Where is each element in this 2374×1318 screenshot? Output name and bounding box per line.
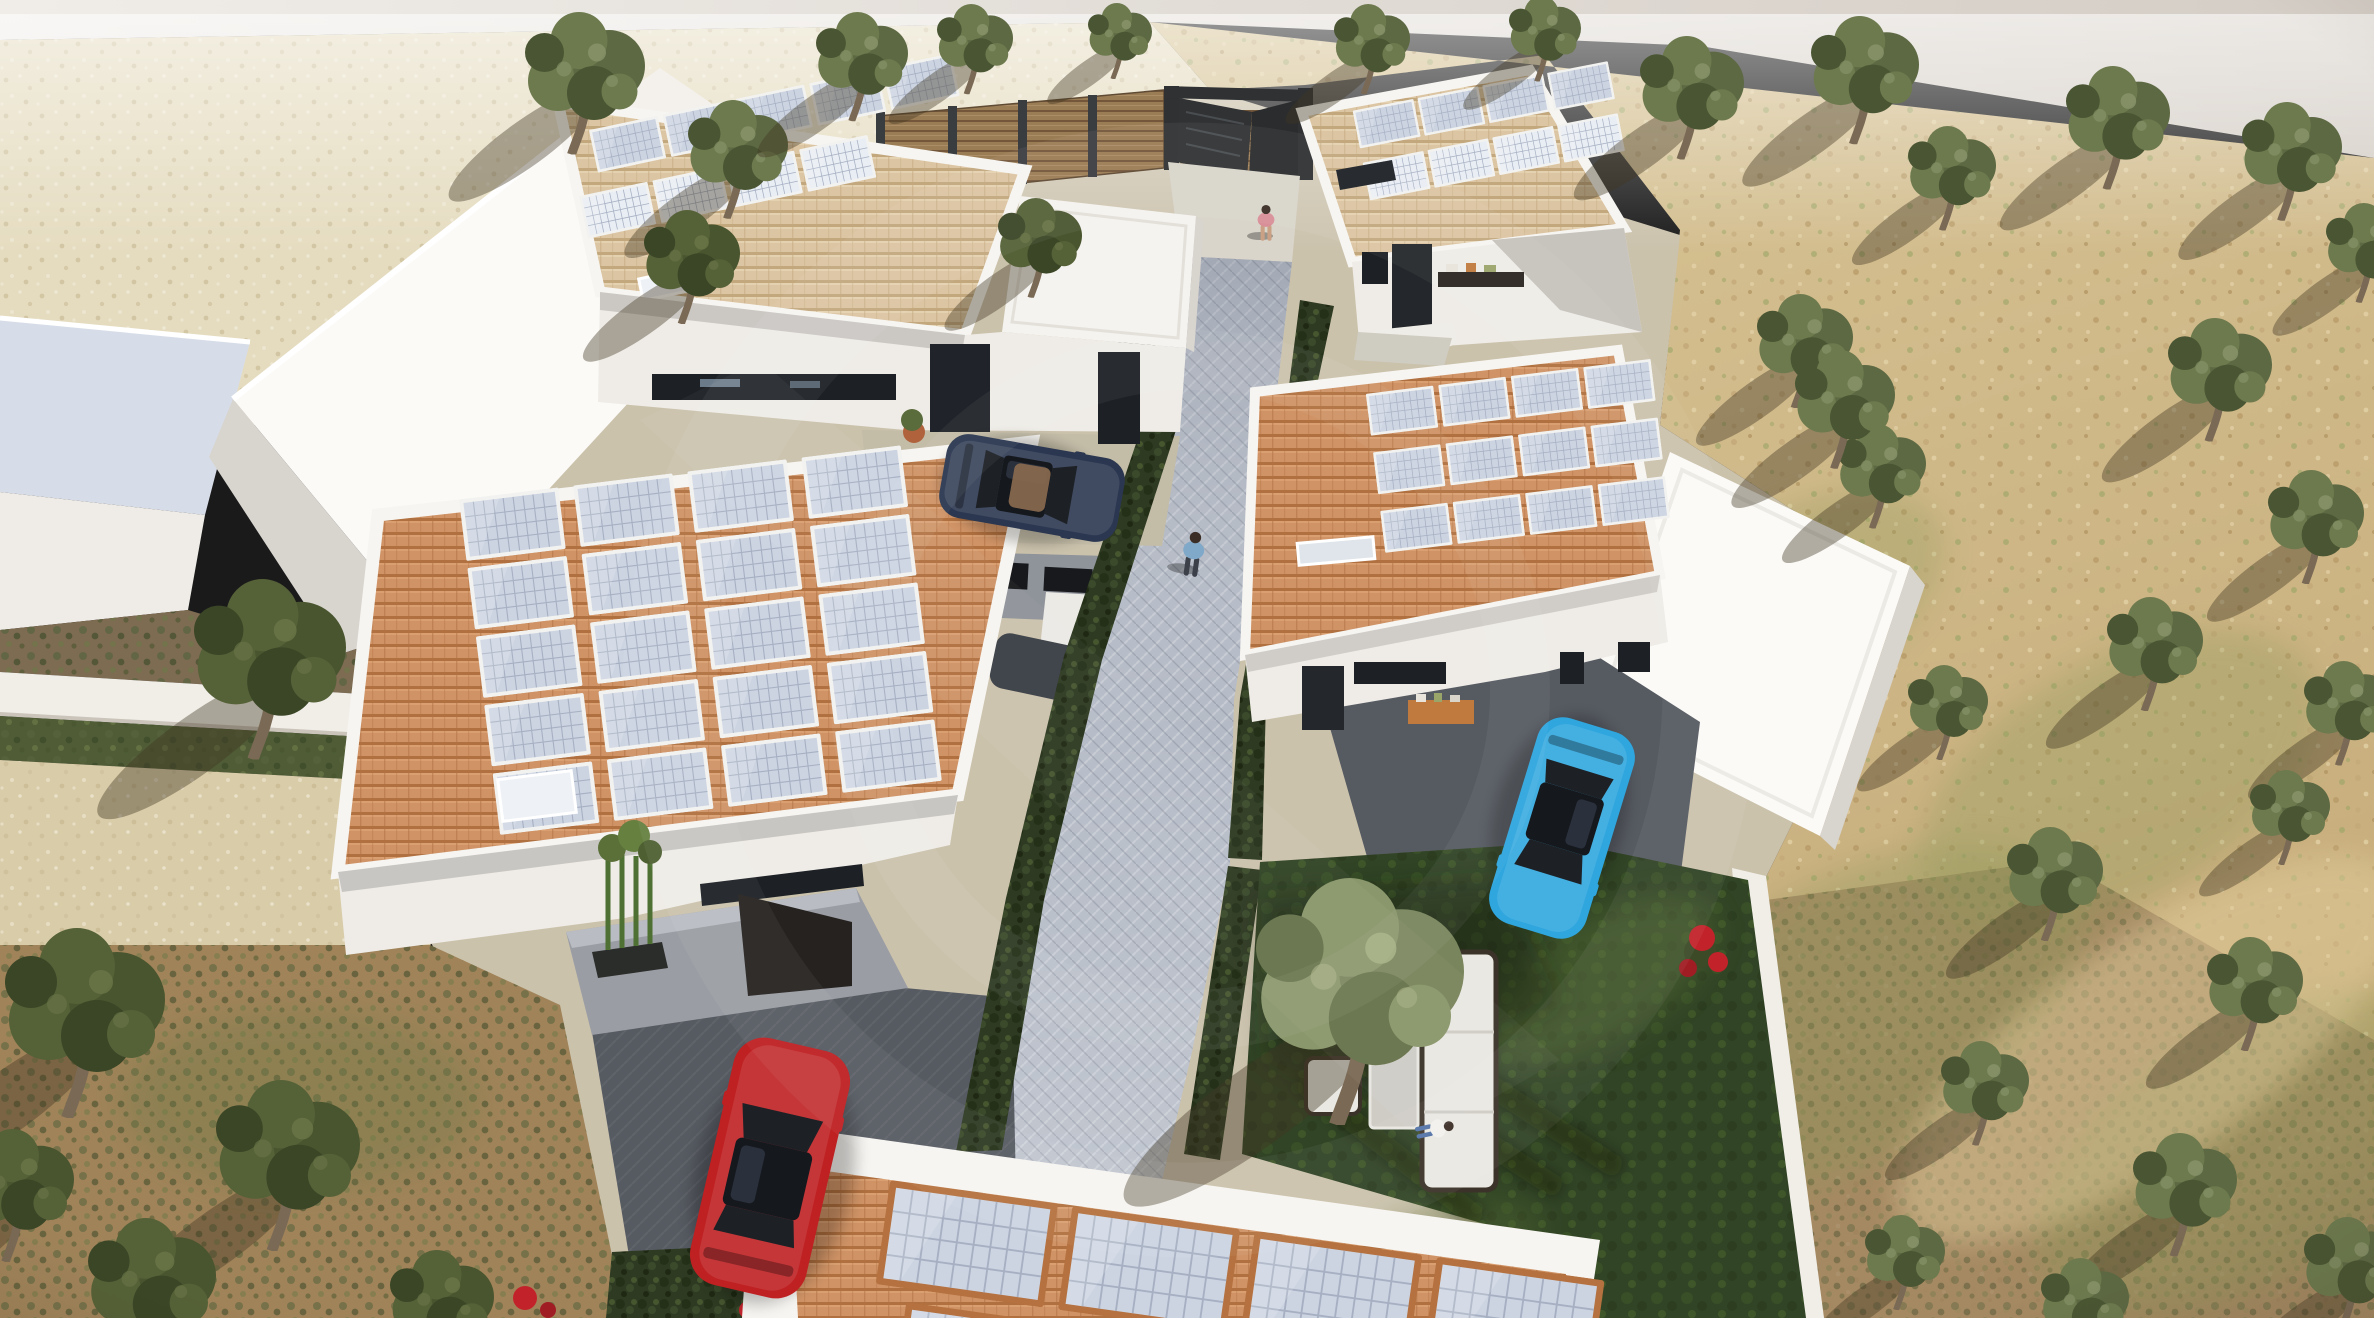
render-canvas: Aerial 3D architectural rendering of a s… bbox=[0, 0, 2374, 1318]
vignette bbox=[0, 0, 2374, 1318]
aerial-render: Aerial 3D architectural rendering of a s… bbox=[0, 0, 2374, 1318]
